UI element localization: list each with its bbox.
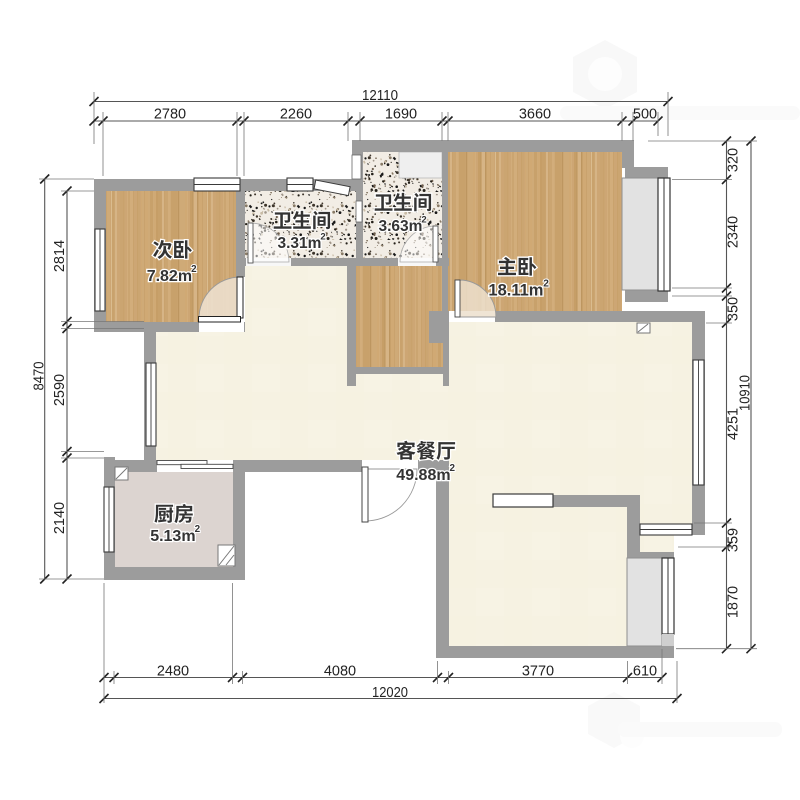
svg-text:2: 2	[450, 463, 456, 474]
svg-text:12020: 12020	[372, 685, 408, 701]
svg-text:2340: 2340	[726, 216, 742, 248]
svg-text:3.63m: 3.63m	[379, 218, 423, 235]
svg-text:2: 2	[543, 278, 549, 289]
svg-text:7.82m: 7.82m	[147, 268, 192, 285]
svg-text:5.13m: 5.13m	[150, 528, 195, 545]
svg-text:49.88m: 49.88m	[396, 467, 450, 484]
svg-text:350: 350	[726, 297, 742, 321]
svg-text:18.11m: 18.11m	[488, 282, 543, 300]
svg-text:2: 2	[421, 215, 426, 226]
svg-text:1870: 1870	[726, 586, 742, 618]
svg-text:8470: 8470	[32, 362, 48, 391]
svg-text:2260: 2260	[280, 107, 312, 123]
svg-text:4251: 4251	[726, 408, 742, 440]
svg-text:2: 2	[195, 524, 201, 535]
svg-text:2: 2	[320, 232, 325, 243]
svg-text:3770: 3770	[522, 664, 554, 680]
svg-text:4080: 4080	[324, 664, 356, 680]
svg-text:320: 320	[726, 148, 742, 172]
svg-text:1690: 1690	[385, 107, 417, 123]
svg-text:2: 2	[191, 264, 197, 275]
svg-text:2780: 2780	[154, 107, 186, 123]
svg-text:359: 359	[726, 528, 742, 552]
svg-text:2480: 2480	[157, 664, 189, 680]
svg-text:3660: 3660	[519, 107, 551, 123]
svg-text:2814: 2814	[52, 240, 68, 272]
svg-text:500: 500	[633, 107, 657, 123]
svg-text:10910: 10910	[738, 375, 754, 411]
svg-text:12110: 12110	[362, 88, 398, 104]
svg-text:2140: 2140	[52, 502, 68, 534]
svg-text:610: 610	[633, 664, 657, 680]
svg-text:2590: 2590	[52, 374, 68, 406]
svg-text:3.31m: 3.31m	[278, 235, 322, 252]
